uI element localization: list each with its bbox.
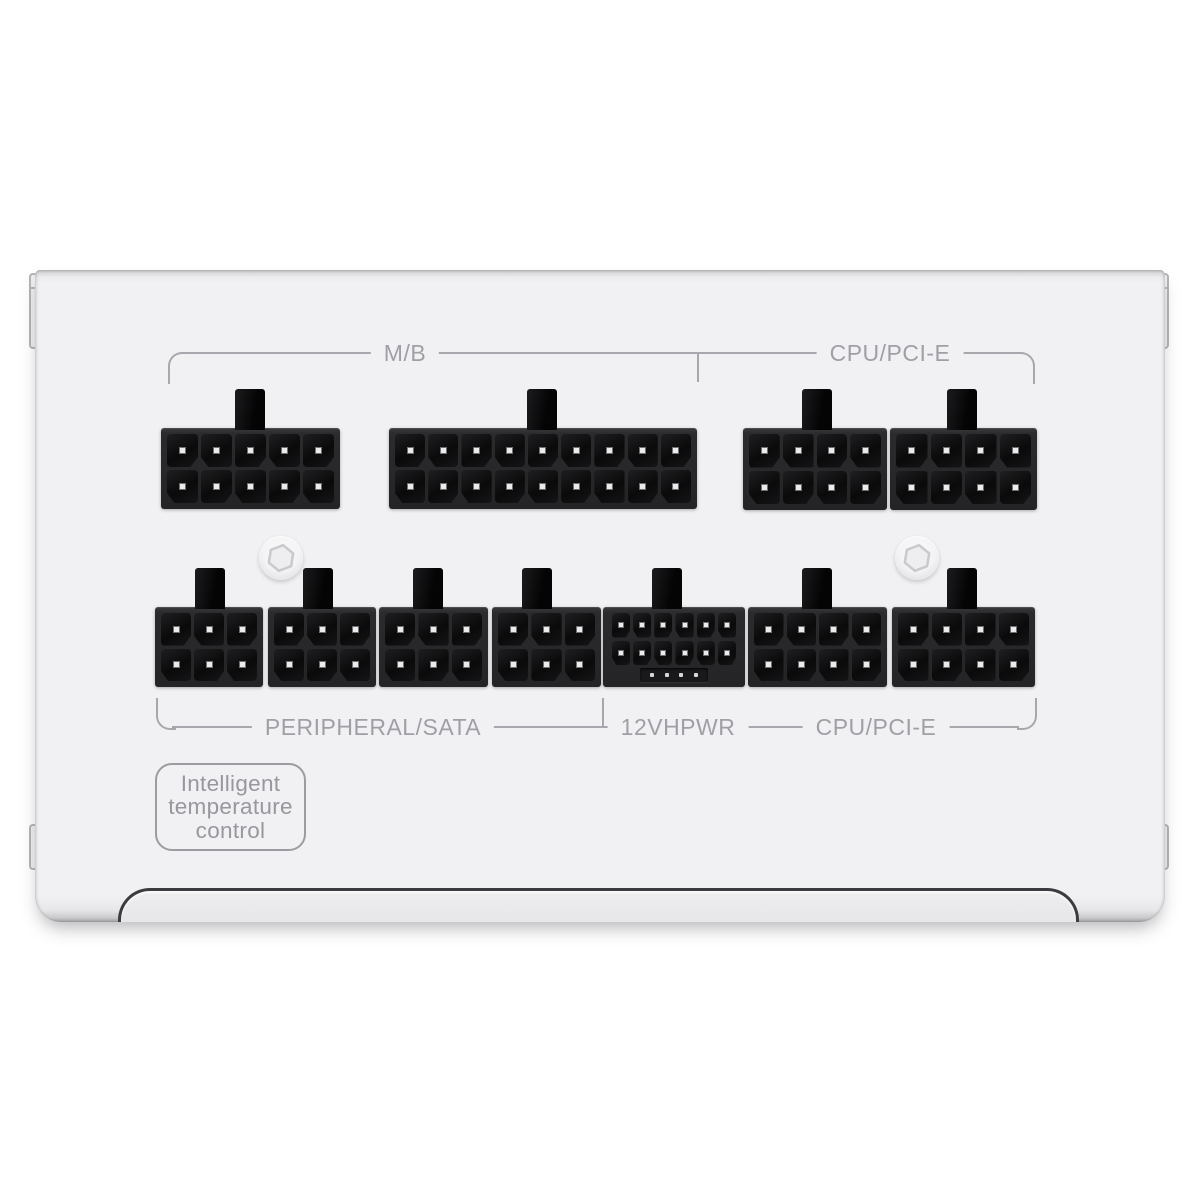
pin-socket bbox=[932, 613, 963, 646]
pin-socket bbox=[385, 649, 415, 682]
pin-socket bbox=[749, 434, 780, 468]
pin-socket bbox=[850, 471, 881, 505]
pin-contact bbox=[247, 447, 254, 454]
label-cpu-pcie-bottom: CPU/PCI-E bbox=[803, 714, 950, 741]
pin-contact bbox=[660, 622, 666, 628]
connector-clip-tab bbox=[235, 389, 265, 430]
pin-contact bbox=[213, 483, 220, 490]
pin-contact bbox=[639, 447, 646, 454]
pin-contact bbox=[910, 626, 917, 633]
pin-contact bbox=[910, 661, 917, 668]
connector-mb-18pin bbox=[389, 428, 697, 509]
pin-socket bbox=[965, 434, 997, 468]
pin-contact bbox=[1010, 626, 1017, 633]
connector-clip-tab bbox=[195, 568, 225, 609]
pin-contact bbox=[539, 447, 546, 454]
pin-contact bbox=[510, 661, 517, 668]
connector-cpu-pcie-8pin-4 bbox=[892, 607, 1035, 687]
pin-contact bbox=[315, 447, 322, 454]
pin-socket bbox=[227, 649, 257, 682]
pin-socket bbox=[528, 470, 558, 503]
pin-socket bbox=[896, 434, 928, 468]
pin-socket bbox=[819, 649, 849, 682]
badge-line-1: Intelligent bbox=[181, 772, 281, 796]
pin-contact bbox=[863, 626, 870, 633]
pin-contact bbox=[908, 447, 915, 454]
pin-contact bbox=[724, 650, 730, 656]
pin-socket bbox=[999, 613, 1030, 646]
pin-contact bbox=[179, 483, 186, 490]
pin-socket bbox=[697, 613, 715, 638]
pin-contact bbox=[606, 447, 613, 454]
pin-socket bbox=[194, 613, 224, 646]
pin-socket bbox=[161, 649, 191, 682]
pin-socket bbox=[307, 649, 337, 682]
pin-contact bbox=[506, 483, 513, 490]
pin-socket bbox=[340, 613, 370, 646]
pin-socket bbox=[754, 649, 784, 682]
pin-contact bbox=[977, 626, 984, 633]
connector-peripheral-sata-6pin-3 bbox=[379, 607, 488, 687]
pin-socket bbox=[495, 434, 525, 467]
connector-clip-tab bbox=[947, 568, 977, 609]
pin-contact bbox=[1012, 447, 1019, 454]
pin-contact bbox=[828, 484, 835, 491]
pin-contact bbox=[765, 661, 772, 668]
pin-socket bbox=[303, 434, 334, 467]
pin-contact bbox=[213, 447, 220, 454]
pin-contact bbox=[539, 483, 546, 490]
pin-socket bbox=[661, 434, 691, 467]
pin-socket bbox=[269, 434, 300, 467]
pin-socket bbox=[852, 649, 882, 682]
pin-socket bbox=[628, 434, 658, 467]
pin-contact bbox=[543, 661, 550, 668]
pin-contact bbox=[281, 447, 288, 454]
pin-socket bbox=[749, 471, 780, 505]
pin-socket bbox=[418, 649, 448, 682]
pin-contact bbox=[828, 447, 835, 454]
top-bracket-left-corner bbox=[168, 352, 188, 384]
pin-socket bbox=[965, 613, 996, 646]
pin-socket bbox=[167, 434, 198, 467]
pin-socket bbox=[340, 649, 370, 682]
pin-socket bbox=[495, 470, 525, 503]
top-bracket-divider-tick bbox=[697, 352, 699, 382]
pin-contact bbox=[977, 661, 984, 668]
pin-socket bbox=[999, 649, 1030, 682]
pin-socket bbox=[850, 434, 881, 468]
pin-contact bbox=[863, 661, 870, 668]
pin-contact bbox=[247, 483, 254, 490]
pin-socket bbox=[594, 470, 624, 503]
badge-line-2: temperature bbox=[168, 795, 293, 819]
pin-socket bbox=[965, 471, 997, 505]
connector-12vhpwr-12plus4 bbox=[603, 607, 745, 687]
pin-socket bbox=[395, 434, 425, 467]
pin-contact bbox=[618, 622, 624, 628]
pin-socket bbox=[594, 434, 624, 467]
pin-socket bbox=[531, 613, 561, 646]
pin-contact bbox=[908, 484, 915, 491]
pin-socket bbox=[931, 434, 963, 468]
pin-contact bbox=[682, 650, 688, 656]
connector-clip-tab bbox=[527, 389, 557, 430]
connector-clip-tab bbox=[802, 389, 832, 430]
pin-contact bbox=[606, 483, 613, 490]
hex-socket-icon bbox=[259, 536, 303, 580]
pin-contact bbox=[862, 447, 869, 454]
connector-peripheral-sata-6pin-4 bbox=[492, 607, 601, 687]
pin-contact bbox=[761, 447, 768, 454]
label-12vhpwr: 12VHPWR bbox=[608, 714, 749, 741]
hex-screw-left bbox=[259, 536, 303, 580]
pin-socket bbox=[528, 434, 558, 467]
pin-socket bbox=[633, 641, 651, 666]
pin-socket bbox=[754, 613, 784, 646]
pin-contact bbox=[239, 626, 246, 633]
sense-pin bbox=[679, 673, 683, 677]
pin-socket bbox=[819, 613, 849, 646]
pin-socket bbox=[1000, 471, 1032, 505]
pin-socket bbox=[461, 470, 491, 503]
bottom-inset-panel bbox=[118, 888, 1079, 922]
pin-socket bbox=[965, 649, 996, 682]
pin-socket bbox=[307, 613, 337, 646]
pin-contact bbox=[319, 661, 326, 668]
pin-socket bbox=[227, 613, 257, 646]
pin-socket bbox=[428, 434, 458, 467]
pin-contact bbox=[830, 661, 837, 668]
pin-socket bbox=[817, 434, 848, 468]
pin-contact bbox=[798, 661, 805, 668]
pin-contact bbox=[862, 484, 869, 491]
pin-socket bbox=[274, 613, 304, 646]
pin-socket bbox=[498, 613, 528, 646]
pin-socket bbox=[385, 613, 415, 646]
pin-contact bbox=[798, 626, 805, 633]
connector-clip-tab bbox=[947, 389, 977, 430]
pin-socket bbox=[395, 470, 425, 503]
pin-contact bbox=[703, 622, 709, 628]
pin-socket bbox=[1000, 434, 1032, 468]
pin-socket bbox=[201, 434, 232, 467]
pin-contact bbox=[319, 626, 326, 633]
pin-socket bbox=[561, 470, 591, 503]
pin-socket bbox=[718, 641, 736, 666]
top-bracket-right-corner bbox=[1015, 352, 1035, 384]
pin-contact bbox=[286, 626, 293, 633]
pin-contact bbox=[618, 650, 624, 656]
pin-contact bbox=[473, 483, 480, 490]
pin-socket bbox=[661, 470, 691, 503]
pin-socket bbox=[269, 470, 300, 503]
pin-socket bbox=[498, 649, 528, 682]
pin-contact bbox=[682, 622, 688, 628]
pin-socket bbox=[235, 434, 266, 467]
pin-contact bbox=[1012, 484, 1019, 491]
pin-contact bbox=[440, 447, 447, 454]
pin-contact bbox=[206, 626, 213, 633]
connector-cpu-pcie-8pin-3 bbox=[748, 607, 887, 687]
pin-socket bbox=[194, 649, 224, 682]
connector-clip-tab bbox=[303, 568, 333, 609]
pin-contact bbox=[672, 483, 679, 490]
pin-contact bbox=[239, 661, 246, 668]
temperature-badge: Intelligent temperature control bbox=[155, 763, 306, 851]
pin-socket bbox=[633, 613, 651, 638]
pin-contact bbox=[943, 626, 950, 633]
pin-contact bbox=[830, 626, 837, 633]
connector-peripheral-sata-6pin-2 bbox=[268, 607, 376, 687]
pin-contact bbox=[573, 447, 580, 454]
pin-contact bbox=[660, 650, 666, 656]
pin-contact bbox=[407, 483, 414, 490]
pin-contact bbox=[510, 626, 517, 633]
connector-peripheral-sata-6pin-1 bbox=[155, 607, 263, 687]
pin-contact bbox=[506, 447, 513, 454]
pin-contact bbox=[430, 626, 437, 633]
bottom-bracket-divider-tick bbox=[602, 698, 604, 728]
hex-screw-right bbox=[895, 536, 939, 580]
sense-pin bbox=[665, 673, 669, 677]
pin-contact bbox=[463, 661, 470, 668]
label-peripheral-sata: PERIPHERAL/SATA bbox=[252, 714, 494, 741]
pin-contact bbox=[352, 626, 359, 633]
pin-contact bbox=[173, 626, 180, 633]
pin-socket bbox=[931, 471, 963, 505]
pin-socket bbox=[787, 649, 817, 682]
pin-socket bbox=[418, 613, 448, 646]
pin-contact bbox=[639, 622, 645, 628]
pin-contact bbox=[397, 626, 404, 633]
pin-contact bbox=[761, 484, 768, 491]
pin-contact bbox=[639, 650, 645, 656]
pin-contact bbox=[473, 447, 480, 454]
label-mb: M/B bbox=[371, 340, 439, 367]
pin-socket bbox=[932, 649, 963, 682]
pin-socket bbox=[565, 649, 595, 682]
pin-socket bbox=[852, 613, 882, 646]
pin-contact bbox=[315, 483, 322, 490]
connector-clip-tab bbox=[522, 568, 552, 609]
pin-socket bbox=[428, 470, 458, 503]
hex-socket-icon bbox=[895, 536, 939, 580]
pin-socket bbox=[898, 613, 929, 646]
pin-contact bbox=[703, 650, 709, 656]
sense-pin bbox=[694, 673, 698, 677]
pin-socket bbox=[274, 649, 304, 682]
pin-socket bbox=[896, 471, 928, 505]
pin-socket bbox=[561, 434, 591, 467]
pin-contact bbox=[576, 626, 583, 633]
pin-socket bbox=[783, 471, 814, 505]
pin-socket bbox=[628, 470, 658, 503]
pin-contact bbox=[397, 661, 404, 668]
pin-contact bbox=[943, 447, 950, 454]
badge-line-3: control bbox=[196, 819, 266, 843]
pin-socket bbox=[654, 613, 672, 638]
sense-pin bbox=[650, 673, 654, 677]
pin-contact bbox=[639, 483, 646, 490]
pin-contact bbox=[463, 626, 470, 633]
connector-cpu-pcie-8pin-2 bbox=[890, 428, 1037, 510]
psu-product-photo: M/B CPU/PCI-E PERIPHERAL/SATA 12VHPWR CP… bbox=[0, 0, 1200, 1200]
pin-contact bbox=[977, 447, 984, 454]
sense-pin-strip bbox=[640, 668, 708, 682]
connector-clip-tab bbox=[802, 568, 832, 609]
pin-contact bbox=[281, 483, 288, 490]
connector-mb-10pin bbox=[161, 428, 340, 509]
pin-socket bbox=[787, 613, 817, 646]
pin-contact bbox=[672, 447, 679, 454]
pin-socket bbox=[161, 613, 191, 646]
connector-cpu-pcie-8pin-1 bbox=[743, 428, 887, 510]
pin-contact bbox=[765, 626, 772, 633]
pin-contact bbox=[173, 661, 180, 668]
pin-socket bbox=[654, 641, 672, 666]
pin-socket bbox=[612, 641, 630, 666]
pin-socket bbox=[452, 613, 482, 646]
pin-contact bbox=[576, 661, 583, 668]
pin-socket bbox=[303, 470, 334, 503]
pin-socket bbox=[675, 613, 693, 638]
pin-socket bbox=[452, 649, 482, 682]
pin-socket bbox=[898, 649, 929, 682]
pin-socket bbox=[461, 434, 491, 467]
pin-socket bbox=[235, 470, 266, 503]
pin-contact bbox=[943, 661, 950, 668]
label-cpu-pcie-top: CPU/PCI-E bbox=[817, 340, 964, 367]
pin-contact bbox=[286, 661, 293, 668]
pin-socket bbox=[565, 613, 595, 646]
pin-socket bbox=[817, 471, 848, 505]
pin-contact bbox=[724, 622, 730, 628]
pin-contact bbox=[977, 484, 984, 491]
pin-socket bbox=[612, 613, 630, 638]
pin-contact bbox=[1010, 661, 1017, 668]
pin-socket bbox=[697, 641, 715, 666]
pin-contact bbox=[430, 661, 437, 668]
pin-contact bbox=[179, 447, 186, 454]
pin-socket bbox=[201, 470, 232, 503]
pin-contact bbox=[943, 484, 950, 491]
pin-socket bbox=[167, 470, 198, 503]
pin-contact bbox=[407, 447, 414, 454]
pin-contact bbox=[543, 626, 550, 633]
pin-contact bbox=[573, 483, 580, 490]
connector-clip-tab bbox=[413, 568, 443, 609]
pin-socket bbox=[531, 649, 561, 682]
connector-clip-tab bbox=[652, 568, 682, 609]
pin-contact bbox=[440, 483, 447, 490]
pin-socket bbox=[783, 434, 814, 468]
pin-socket bbox=[718, 613, 736, 638]
pin-socket bbox=[675, 641, 693, 666]
pin-contact bbox=[795, 484, 802, 491]
pin-contact bbox=[795, 447, 802, 454]
pin-contact bbox=[352, 661, 359, 668]
pin-contact bbox=[206, 661, 213, 668]
